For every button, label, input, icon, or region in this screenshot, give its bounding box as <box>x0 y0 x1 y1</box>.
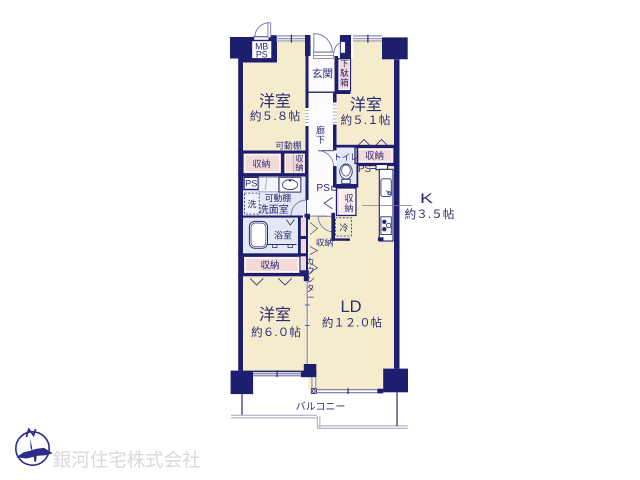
svg-text:下: 下 <box>340 59 349 69</box>
svg-text:約６.０帖: 約６.０帖 <box>251 325 301 339</box>
svg-text:トイレ: トイレ <box>333 152 359 162</box>
svg-text:PS: PS <box>245 179 257 189</box>
svg-text:洗面室: 洗面室 <box>259 203 289 216</box>
svg-text:PS: PS <box>256 49 268 59</box>
svg-text:LD: LD <box>340 298 361 316</box>
svg-text:箱: 箱 <box>340 77 349 88</box>
svg-text:K: K <box>420 191 433 206</box>
svg-text:収納: 収納 <box>252 158 270 169</box>
svg-text:洋室: 洋室 <box>259 306 291 324</box>
svg-text:約５.８帖: 約５.８帖 <box>250 109 301 123</box>
svg-text:収納: 収納 <box>316 236 334 247</box>
svg-text:浴室: 浴室 <box>274 230 292 241</box>
svg-text:洋室: 洋室 <box>350 96 382 114</box>
svg-text:納: 納 <box>295 163 303 173</box>
svg-text:廊: 廊 <box>316 125 325 136</box>
svg-text:納: 納 <box>344 203 353 214</box>
svg-text:洗: 洗 <box>247 199 256 210</box>
svg-text:収納: 収納 <box>260 259 279 271</box>
svg-text:銀河住宅株式会社: 銀河住宅株式会社 <box>53 450 201 471</box>
svg-text:収納: 収納 <box>365 150 384 162</box>
svg-text:約５.１帖: 約５.１帖 <box>341 113 391 127</box>
svg-text:下: 下 <box>316 135 325 145</box>
svg-text:可動棚: 可動棚 <box>265 192 292 203</box>
svg-text:PS: PS <box>358 164 372 175</box>
svg-text:駄: 駄 <box>340 67 349 78</box>
svg-text:約１２.０帖: 約１２.０帖 <box>322 316 382 330</box>
svg-text:可動棚: 可動棚 <box>275 139 302 150</box>
svg-text:PS: PS <box>316 183 330 194</box>
svg-text:約３.５帖: 約３.５帖 <box>405 207 455 221</box>
svg-text:冷: 冷 <box>339 222 348 233</box>
svg-text:バルコニー: バルコニー <box>296 401 346 413</box>
svg-text:収: 収 <box>344 193 353 204</box>
svg-text:洋室: 洋室 <box>259 93 291 111</box>
svg-text:玄関: 玄関 <box>312 67 333 80</box>
